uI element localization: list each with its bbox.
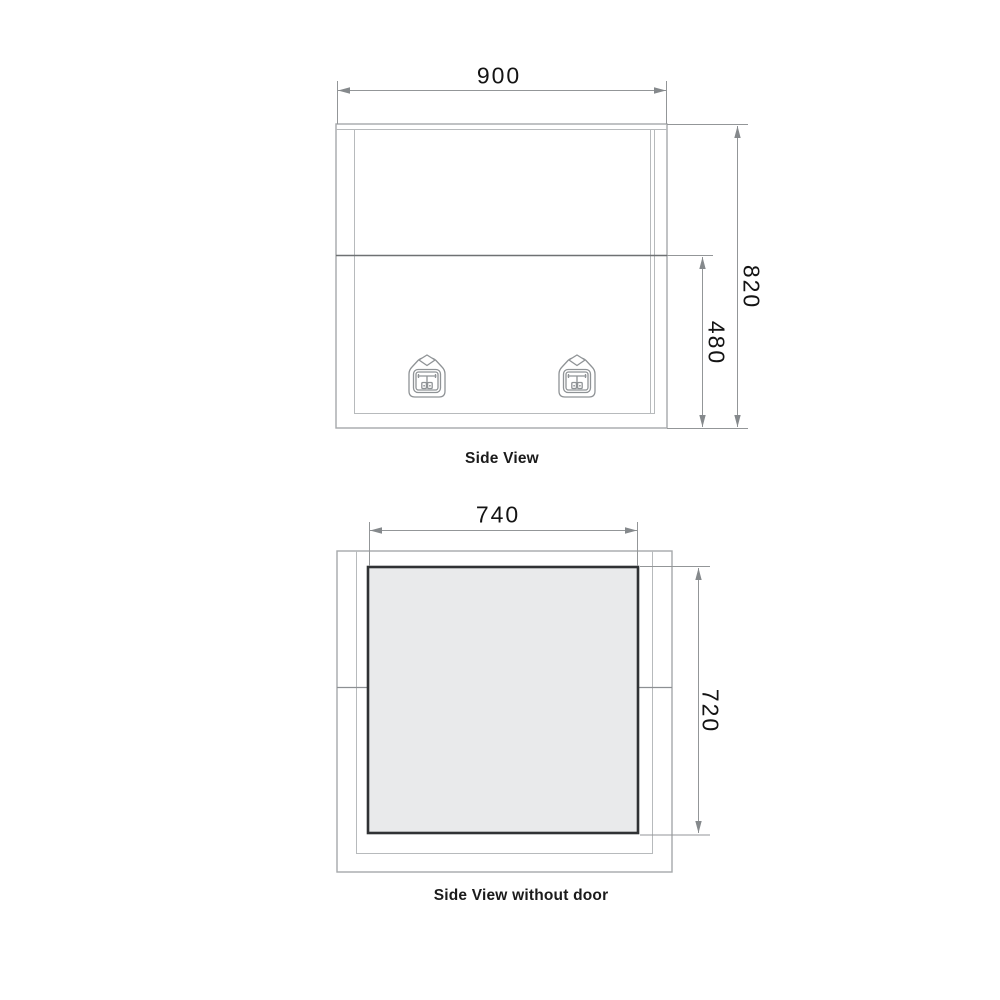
dim-label-height-820: 820 (738, 265, 765, 309)
dim-label-width-900: 900 (477, 63, 521, 90)
dimension-820 (667, 125, 748, 429)
caption-side-view: Side View (465, 450, 539, 468)
arrow-left-icon (370, 527, 382, 533)
dim-label-opening-width-740: 740 (476, 502, 520, 529)
latch-icon (559, 355, 595, 397)
arrow-up-icon (699, 257, 705, 269)
side-view-drawing (336, 81, 748, 429)
toolbox-technical-drawing (0, 0, 1000, 1000)
door-opening-panel (368, 567, 638, 833)
dim-label-door-height-480: 480 (703, 321, 730, 365)
drawing-canvas: 900 820 480 Side View 740 720 Side View … (0, 0, 1000, 1000)
dim-label-opening-height-720: 720 (697, 689, 724, 733)
arrow-down-icon (699, 415, 705, 427)
arrow-up-icon (695, 568, 701, 580)
arrow-up-icon (734, 126, 740, 138)
caption-side-view-without-door: Side View without door (434, 887, 609, 905)
arrow-right-icon (625, 527, 637, 533)
arrow-left-icon (338, 87, 350, 93)
arrow-right-icon (654, 87, 666, 93)
arrow-down-icon (695, 821, 701, 833)
toolbox-outer-body (336, 124, 667, 428)
toolbox-inner-wall-lines (354, 129, 655, 414)
side-view-without-door-drawing (337, 522, 710, 872)
latch-icon (409, 355, 445, 397)
arrow-down-icon (734, 415, 740, 427)
dimension-740 (370, 522, 638, 566)
